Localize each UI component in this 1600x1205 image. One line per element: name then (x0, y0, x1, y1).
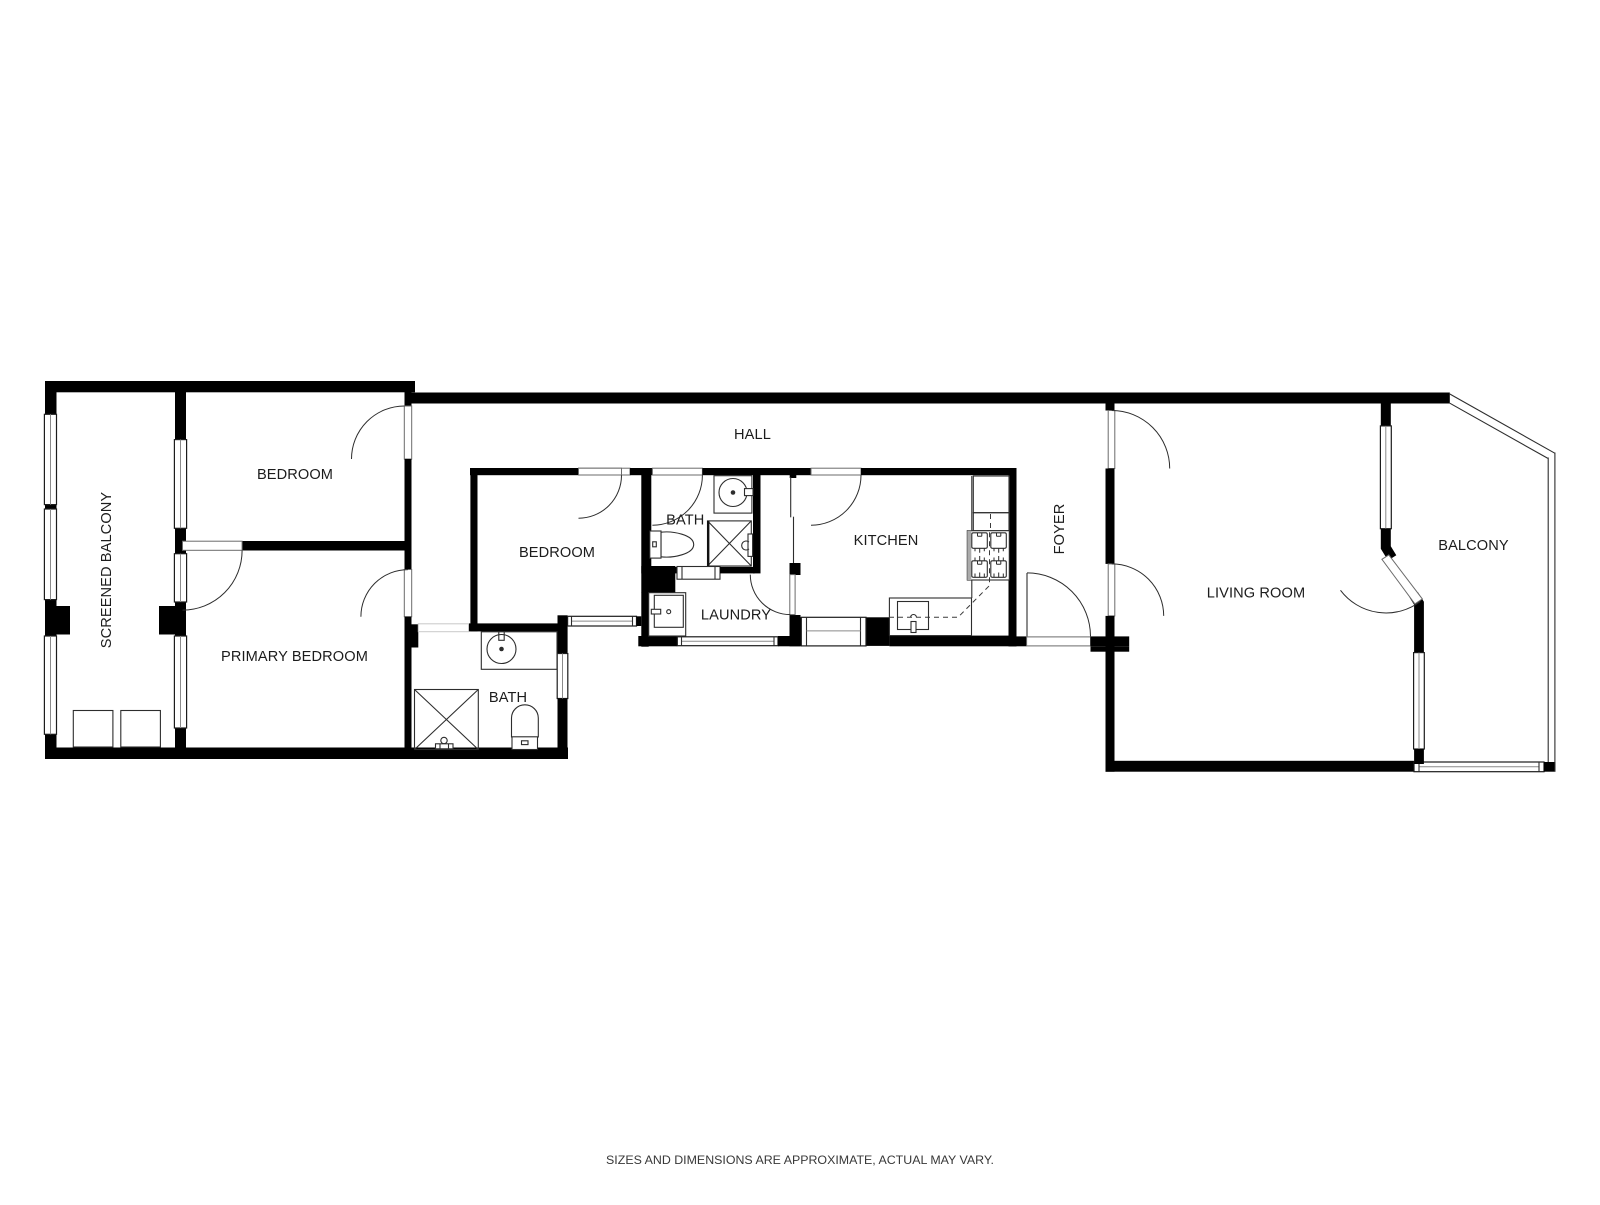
svg-text:BALCONY: BALCONY (1438, 538, 1509, 554)
svg-text:HALL: HALL (734, 427, 771, 443)
svg-text:PRIMARY BEDROOM: PRIMARY BEDROOM (221, 649, 368, 665)
svg-text:BEDROOM: BEDROOM (257, 467, 333, 483)
svg-text:KITCHEN: KITCHEN (854, 533, 919, 549)
svg-text:BATH: BATH (666, 513, 704, 529)
svg-text:SCREENED BALCONY: SCREENED BALCONY (99, 492, 115, 649)
svg-text:BATH: BATH (489, 690, 527, 706)
svg-text:LAUNDRY: LAUNDRY (701, 608, 771, 624)
svg-text:BEDROOM: BEDROOM (519, 545, 595, 561)
svg-text:LIVING ROOM: LIVING ROOM (1207, 586, 1305, 602)
svg-text:FOYER: FOYER (1052, 504, 1068, 555)
svg-text:SIZES AND DIMENSIONS ARE APPRO: SIZES AND DIMENSIONS ARE APPROXIMATE, AC… (606, 1153, 994, 1167)
